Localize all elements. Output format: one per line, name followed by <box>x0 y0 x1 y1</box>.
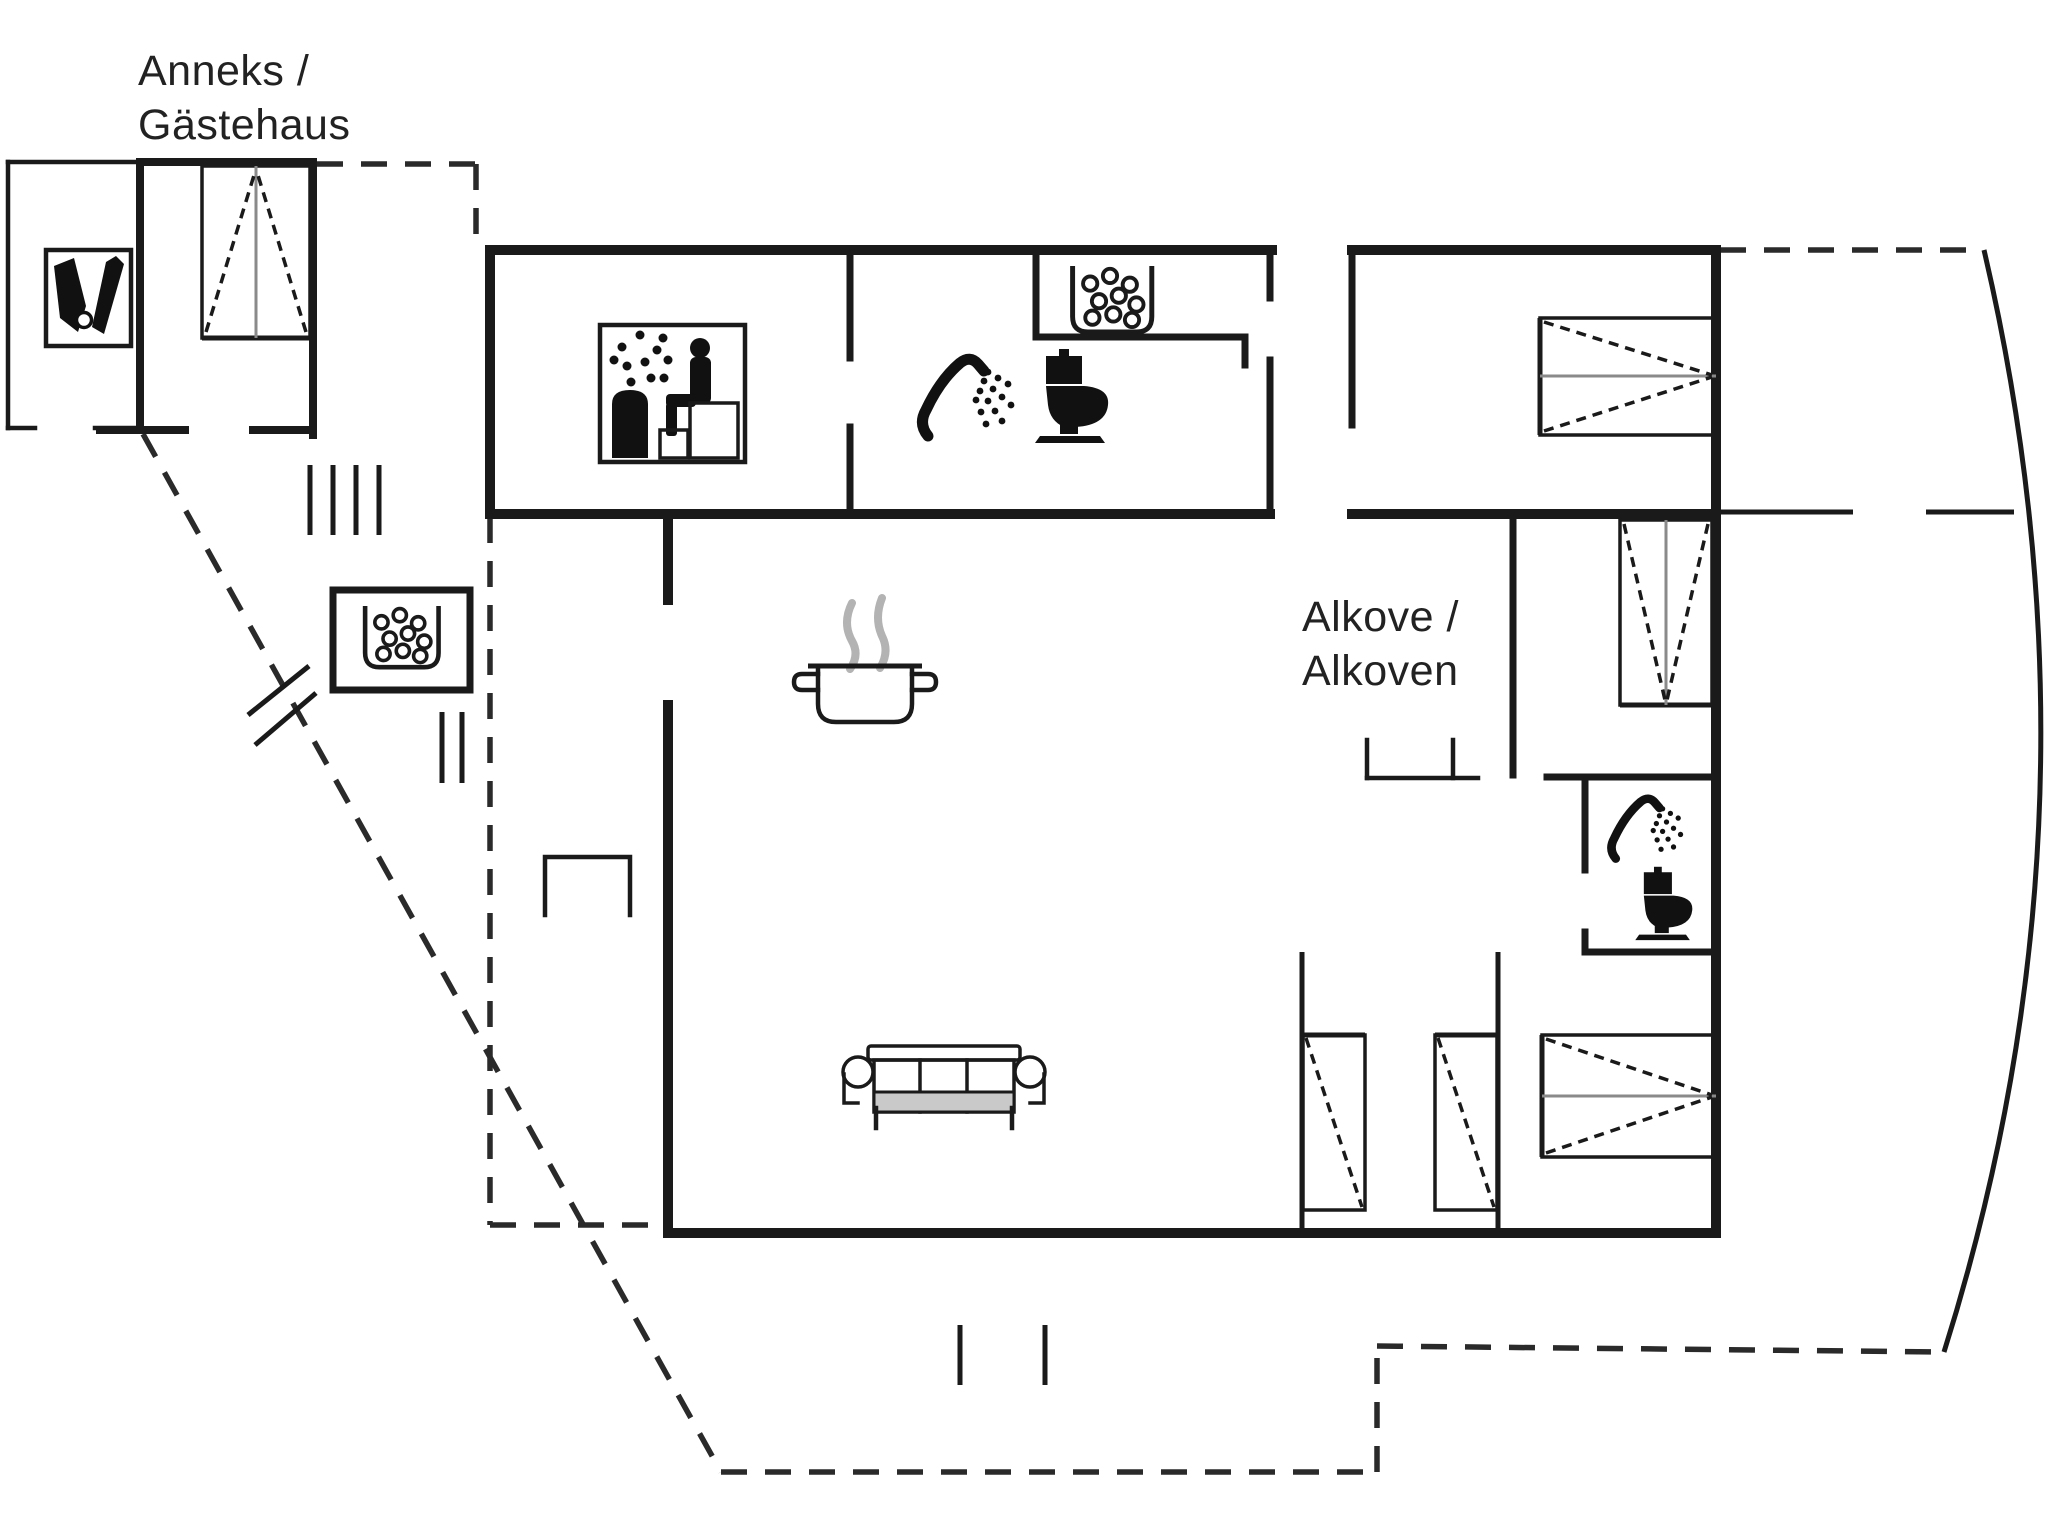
shower-icon <box>922 359 1014 436</box>
whirlpool-icon <box>1073 266 1152 332</box>
plan-canvas: Anneks / Gästehaus Alkove / Alkoven <box>0 0 2048 1536</box>
sofa-icon <box>843 1046 1045 1128</box>
toilet-icon <box>1035 349 1108 443</box>
bedroom-double-bed <box>1540 318 1716 435</box>
annex-double-bed <box>202 166 310 338</box>
single-bed-right <box>1435 1035 1497 1210</box>
cooking-pot-icon <box>794 598 936 722</box>
toilet-icon-2 <box>1635 867 1692 940</box>
hot-tub-step-marks <box>248 666 316 745</box>
shower-icon-2 <box>1611 799 1683 859</box>
floor-plan-svg <box>0 0 2048 1536</box>
sauna-icon <box>600 325 745 462</box>
single-bed-left <box>1303 1035 1365 1210</box>
alcove-double-bed <box>1620 520 1712 705</box>
cleaning-equipment-icon <box>46 250 131 346</box>
lower-double-bed <box>1542 1035 1716 1157</box>
hot-tub-icon <box>333 590 470 690</box>
bench-outline <box>545 857 630 915</box>
annex-walls <box>8 162 313 435</box>
perimeter-arc <box>1944 250 2041 1352</box>
terrace-entry-ticks <box>960 1325 1045 1385</box>
